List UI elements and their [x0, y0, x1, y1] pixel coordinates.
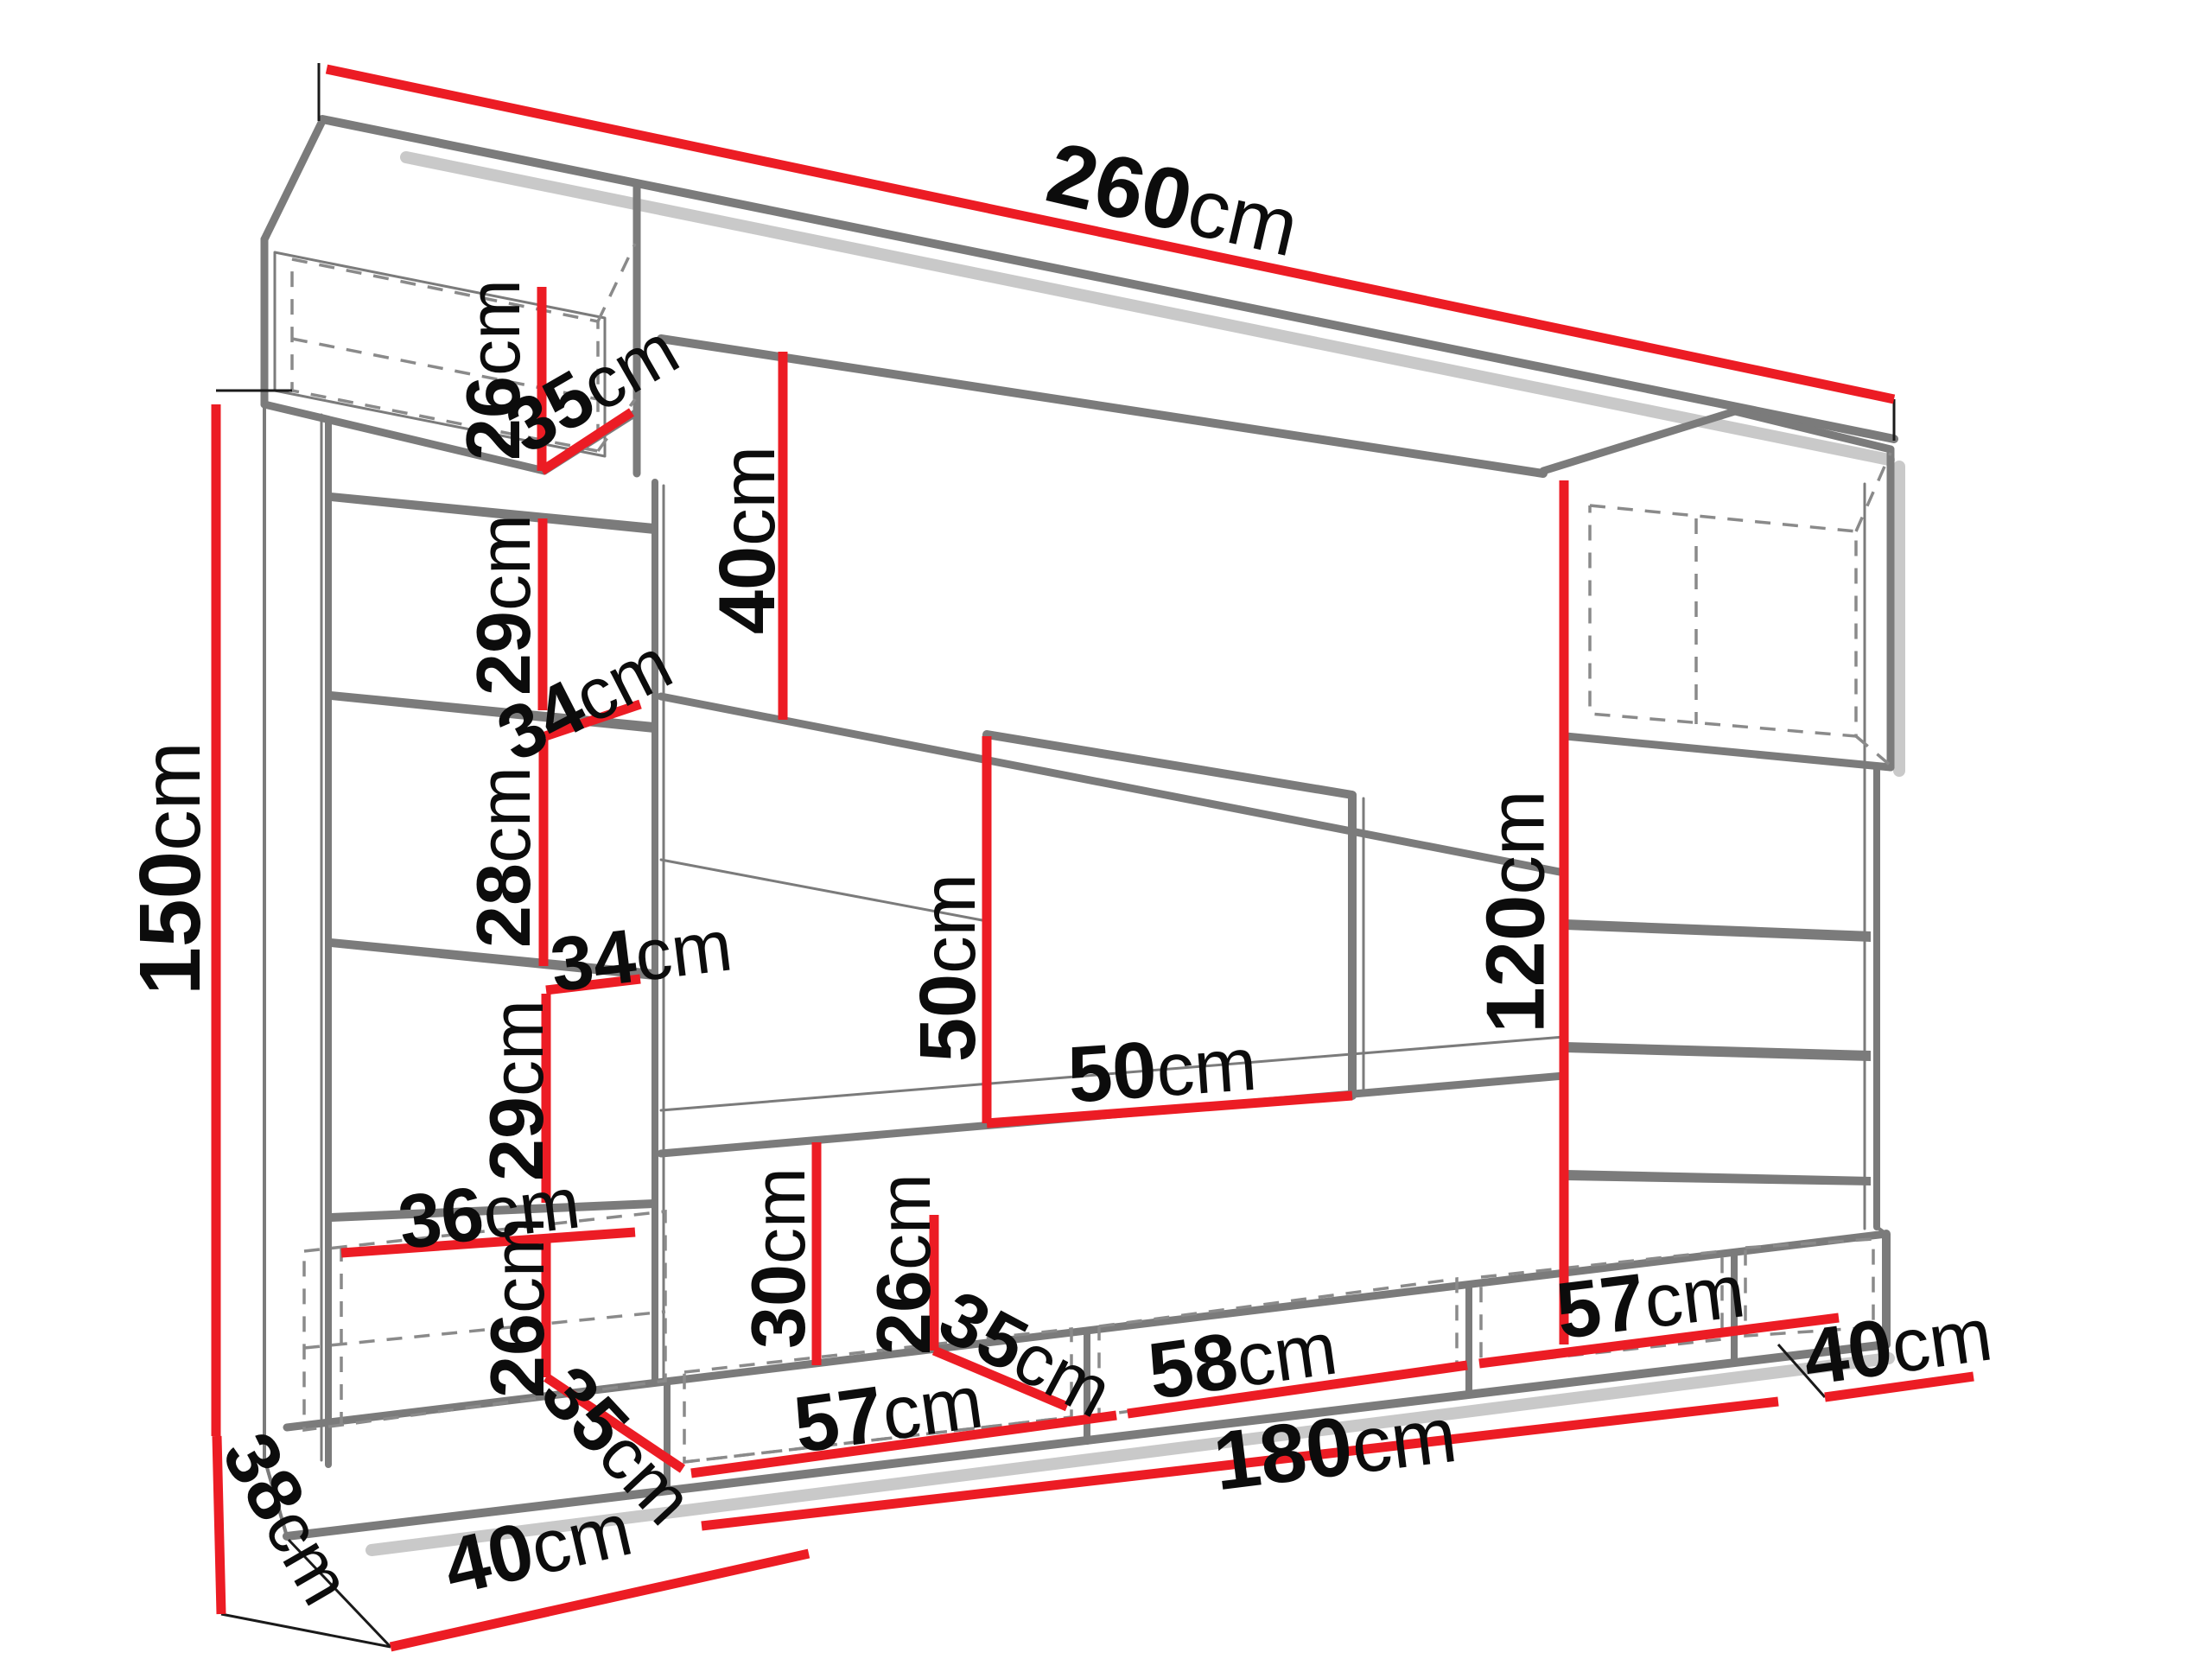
dim-left-shelf-gap-2-label: 28cm — [461, 766, 546, 948]
shelf-edge — [1566, 1042, 1871, 1061]
shelf-edge — [1566, 1170, 1871, 1185]
dim-bottom-mid-cabinet-height-label: 26cm — [861, 1173, 946, 1355]
dim-bottom-left-cabinet-height-label: 26cm — [474, 1217, 560, 1398]
dim-top-panel-height-label: 40cm — [703, 446, 791, 634]
dim-total-height-label: 150cm — [122, 741, 219, 995]
furniture-dimension-diagram: 260cm150cm26cm35cm40cm29cm34cm28cm34cm29… — [0, 0, 2212, 1659]
dim-left-shelf-gap-3-label: 29cm — [474, 1000, 559, 1181]
dim-total-width-label: 260cm — [1039, 124, 1307, 275]
dim-tv-stand-width-label: 180cm — [1209, 1387, 1461, 1509]
dim-tv-niche-height-label: 50cm — [904, 874, 992, 1062]
dim-right-column-height-label: 120cm — [1470, 790, 1562, 1033]
dim-band-gap-height-label: 30cm — [735, 1167, 821, 1349]
diagram-stage: 260cm150cm26cm35cm40cm29cm34cm28cm34cm29… — [0, 0, 2212, 1659]
right-column — [1543, 411, 1891, 1234]
dim-tv-niche-width-label: 50cm — [1065, 1019, 1260, 1120]
dim-left-shelf-gap-1-label: 29cm — [461, 514, 546, 696]
top-panel-front-bottom-edge — [661, 696, 1564, 873]
dim-side-depth-label: 38cm — [206, 1419, 371, 1618]
dimension-labels: 260cm150cm26cm35cm40cm29cm34cm28cm34cm29… — [122, 124, 1997, 1618]
shelf-edge — [1566, 919, 1871, 942]
dim-base-right-width-label: 40cm — [1798, 1288, 1997, 1402]
dim-left-shelf-depth-2-label: 34cm — [546, 900, 736, 1007]
